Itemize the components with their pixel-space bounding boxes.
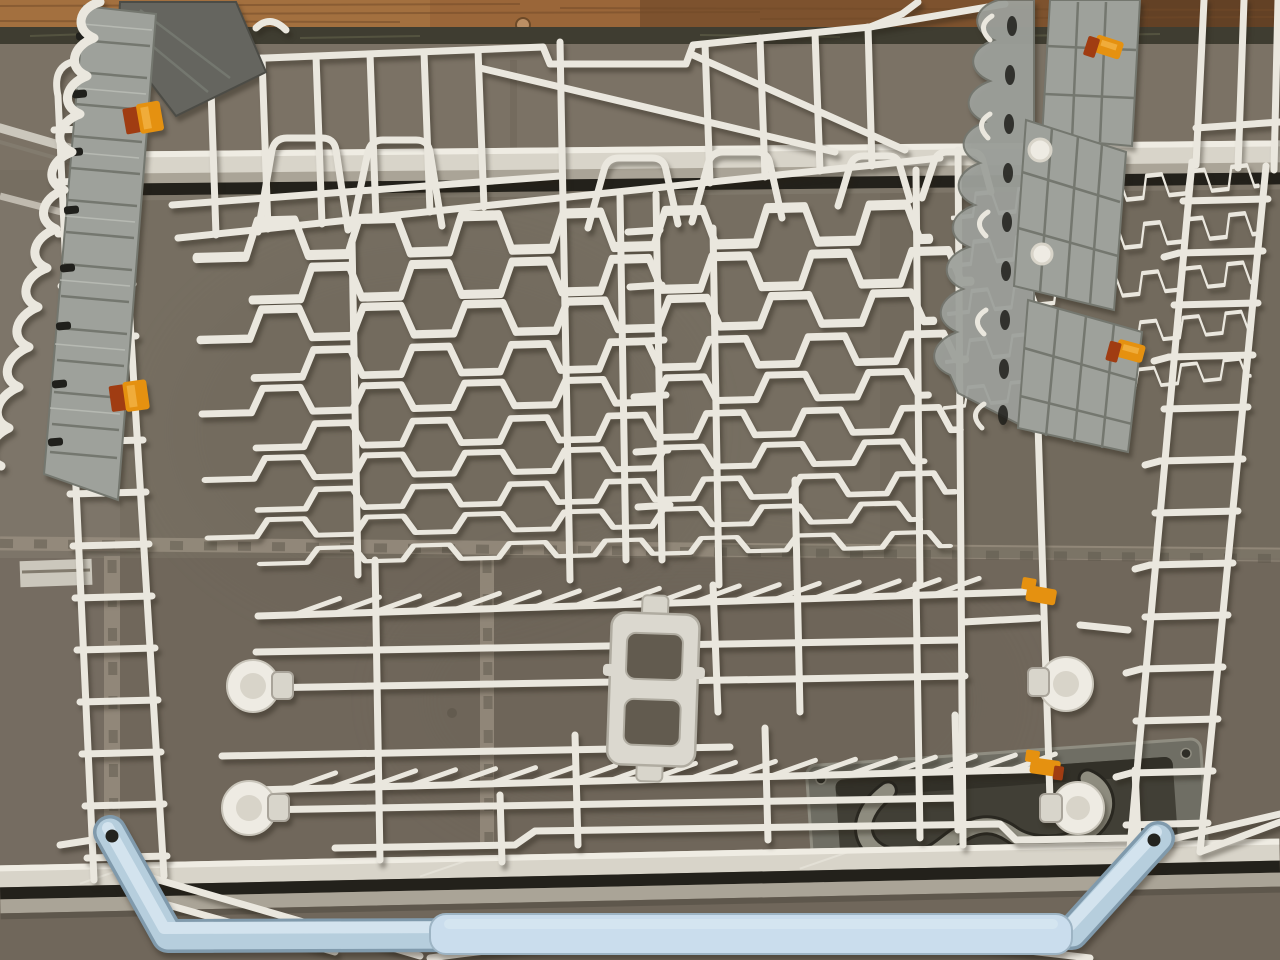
axle-cap-4 (1040, 794, 1062, 822)
axle-cap-1 (272, 672, 293, 699)
handle-pivot-hole-right (1148, 834, 1161, 847)
photo-dishwasher-rack (0, 0, 1280, 960)
shelf-knob-2 (1032, 244, 1052, 264)
scene (0, 0, 1280, 960)
center-plastic-bracket (599, 594, 707, 783)
shelf-knob-1 (1029, 139, 1051, 161)
handle-pivot-hole-left (106, 830, 119, 843)
axle-cap-3 (1028, 668, 1049, 696)
axle-cap-2 (268, 794, 289, 821)
